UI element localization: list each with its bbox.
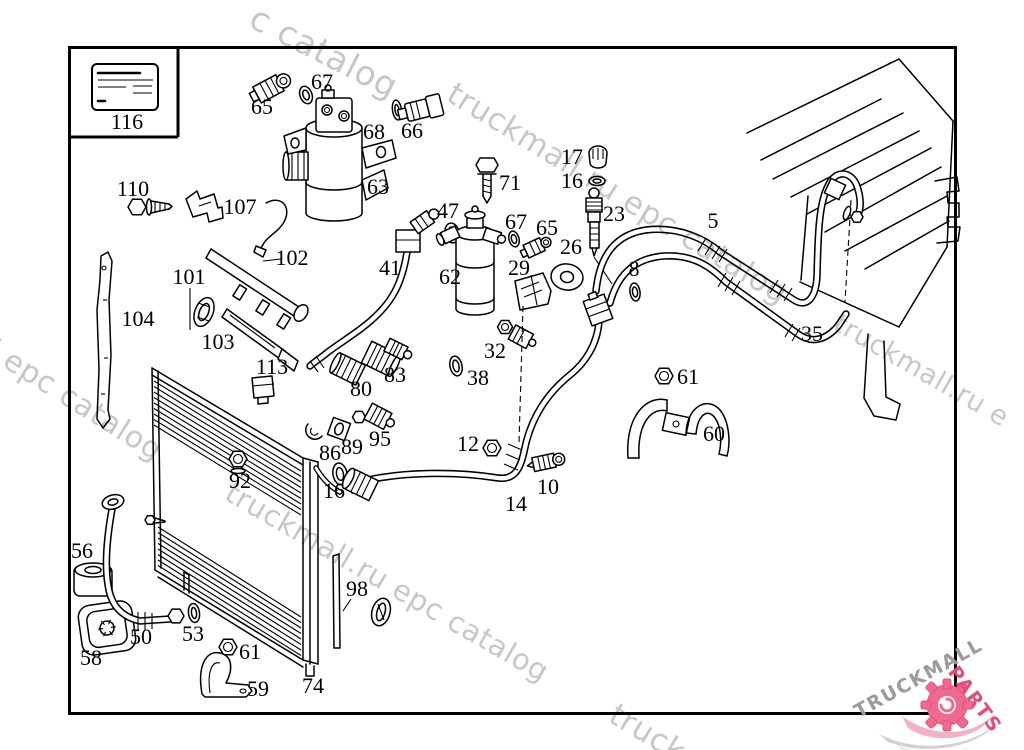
logo-gear-icon: [0, 0, 1024, 750]
parts-diagram-page: c catalog truckmall.ru epc catalog truck…: [0, 0, 1024, 750]
